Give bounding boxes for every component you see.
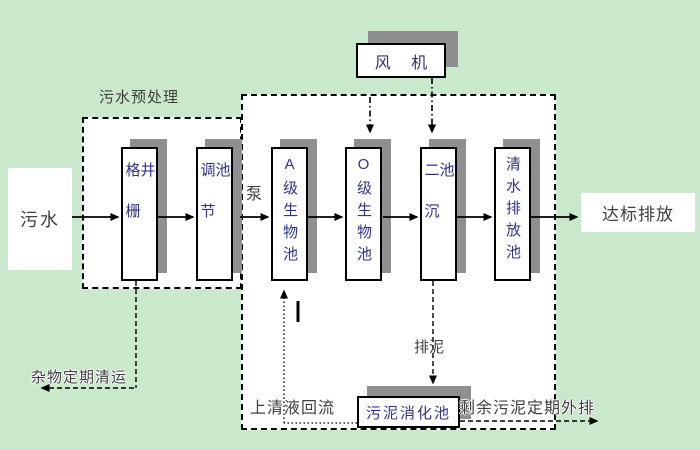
sludge-drain-label: 排泥 (414, 336, 444, 357)
clean-water-tank-box: 清水排放池 (494, 147, 531, 281)
o-bio-tank-box: O级生物池 (345, 147, 382, 281)
effluent-box: 达标排放 (581, 193, 695, 232)
wastewater-process-flow-diagram: 污水 达标排放 风 机 格栅井 调节池 A级生物池 O级生物池 二沉池 清水排放… (0, 0, 700, 450)
influent-box: 污水 (8, 168, 72, 270)
debris-removal-label: 杂物定期清运 (31, 366, 127, 387)
fan-box: 风 机 (356, 43, 446, 78)
excess-sludge-out-label: 剩余污泥定期外排 (459, 394, 595, 418)
effluent-label: 达标排放 (602, 200, 674, 225)
sludge-digester-label: 污泥消化池 (366, 402, 451, 423)
clean-water-tank-label: 清水排放池 (505, 149, 520, 279)
a-bio-tank-label: A级生物池 (282, 149, 297, 279)
grid-well-box: 格栅井 (121, 147, 158, 281)
secondary-clarifier-box: 二沉池 (420, 147, 457, 281)
grid-well-label: 格栅井 (125, 149, 155, 279)
pump-label: 泵 (246, 180, 262, 204)
secondary-clarifier-label: 二沉池 (424, 149, 454, 279)
o-bio-tank-label: O级生物池 (356, 149, 371, 279)
a-bio-tank-box: A级生物池 (271, 147, 308, 281)
fan-label: 风 机 (367, 49, 435, 73)
pretreatment-label: 污水预处理 (99, 86, 179, 107)
supernatant-return-label: 上清液回流 (250, 394, 335, 418)
influent-label: 污水 (20, 206, 60, 232)
sludge-digester-box: 污泥消化池 (357, 396, 460, 428)
regulating-tank-box: 调节池 (196, 147, 233, 281)
regulating-tank-label: 调节池 (200, 149, 230, 279)
